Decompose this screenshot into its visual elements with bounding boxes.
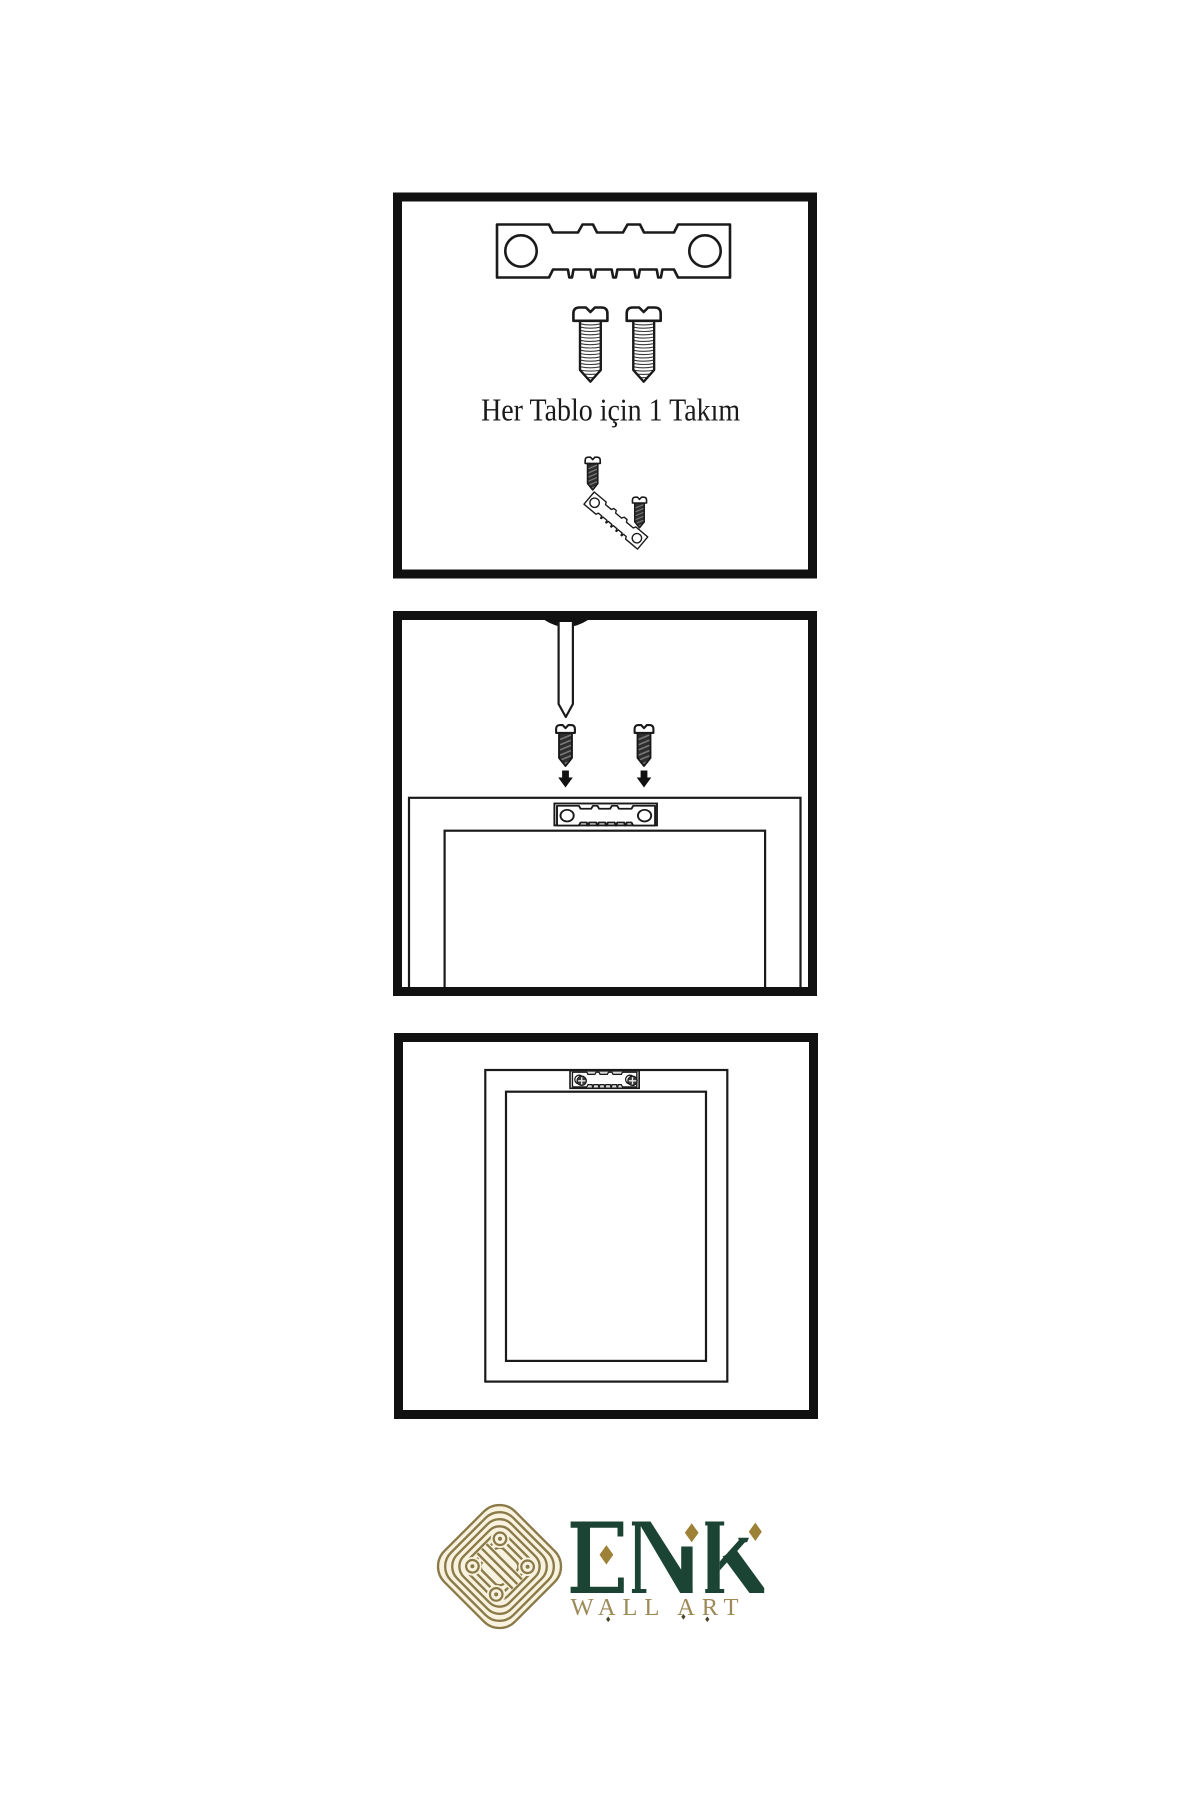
svg-text:Her Tablo için 1 Takım: Her Tablo için 1 Takım — [481, 393, 740, 428]
